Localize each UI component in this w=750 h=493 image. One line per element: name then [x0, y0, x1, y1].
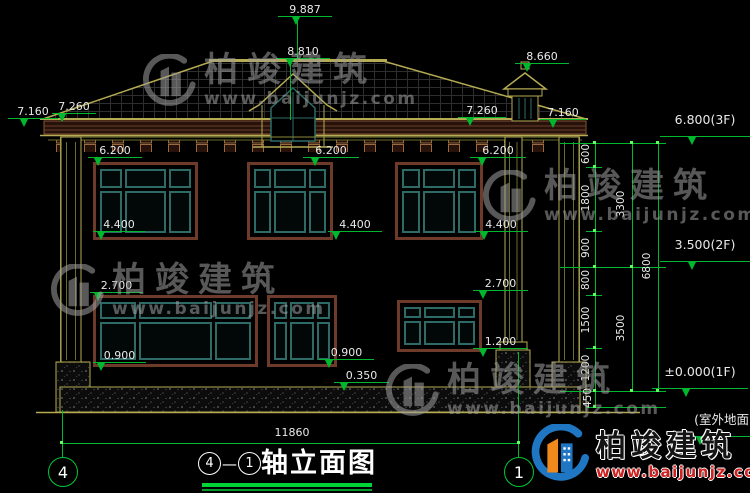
window-pane [254, 169, 271, 188]
chain-tick [630, 141, 633, 144]
chain-total: 6800 [641, 244, 653, 288]
window-pane [424, 321, 455, 345]
window-pane [404, 321, 421, 345]
dim-1f-window-top: 2.700 [473, 277, 528, 291]
brand-logo-url: www.baijunjz.com [596, 463, 750, 481]
watermark-url: www.baijunjz.com [204, 89, 418, 109]
window-pane [274, 169, 305, 188]
dim-tick [60, 441, 63, 444]
title-text: 轴立面图 [261, 450, 377, 477]
window-pane [139, 322, 212, 360]
window-pane [169, 169, 191, 188]
watermark-brand: 柏竣建筑 [447, 362, 661, 399]
chain-tick [593, 141, 596, 144]
dim-eave-right-inner: 7.260 [458, 104, 506, 118]
chain-ext-line [560, 143, 666, 144]
dim-2f-window-top: 6.200 [303, 144, 359, 158]
drawing-title: 4 — 1 轴立面图 [198, 450, 377, 477]
watermark-brand: 柏竣建筑 [544, 168, 750, 205]
elevation-sheet: 9.887 8.810 8.660 7.160 7.260 7.260 7.16… [0, 0, 750, 493]
dim-ridge-level: 9.887 [278, 3, 332, 17]
watermark-logo-icon [385, 364, 439, 418]
window-pane [254, 191, 271, 233]
title-axis-start: 4 [198, 452, 221, 475]
chain-tick [593, 346, 596, 349]
watermark-logo-icon [142, 54, 196, 108]
level-label-3f: 6.800(3F) [660, 112, 750, 137]
window-pane [458, 169, 476, 188]
window-pane [423, 191, 456, 233]
watermark: 柏竣建筑 www.baijunjz.com [50, 262, 326, 319]
window-pane [125, 169, 166, 188]
dim-eave-left-outer: 7.160 [8, 105, 58, 119]
watermark: 柏竣建筑 www.baijunjz.com [482, 168, 750, 225]
window-pane [100, 169, 122, 188]
window-pane [274, 322, 287, 360]
window-pane [309, 191, 326, 233]
chain-tick [593, 229, 596, 232]
title-underline-thin [202, 489, 372, 491]
title-separator: — [222, 455, 237, 473]
watermark-brand: 柏竣建筑 [204, 52, 418, 89]
dim-chimney-level: 8.660 [515, 50, 569, 64]
window-pane [309, 169, 326, 188]
dim-eave-right-outer: 7.160 [540, 106, 586, 120]
watermark-logo-icon [482, 170, 536, 224]
window-1f-right [397, 300, 482, 352]
window-pane [290, 322, 313, 360]
dim-total-width: 11860 [262, 426, 322, 439]
title-axis-end: 1 [238, 452, 261, 475]
brand-logo: 柏竣建筑 www.baijunjz.com [528, 424, 750, 486]
window-pane [404, 307, 421, 318]
dim-2f-window-sill: 4.400 [328, 218, 382, 232]
chain-tick [656, 141, 659, 144]
watermark-url: www.baijunjz.com [112, 299, 326, 319]
chain-value: 1500 [580, 298, 592, 342]
level-label-2f: 3.500(2F) [660, 237, 750, 262]
chain-tick [630, 265, 633, 268]
window-pane [274, 191, 305, 233]
dim-2f-window-top: 6.200 [470, 144, 526, 158]
axis-extension-line [62, 410, 63, 457]
window-pane [402, 169, 420, 188]
watermark-logo-icon [50, 264, 104, 318]
window-pane [423, 169, 456, 188]
dim-eave-left-inner: 7.260 [52, 100, 96, 114]
chain-tick [593, 265, 596, 268]
dim-1f-window-sill: 0.900 [93, 349, 146, 363]
window-pane [215, 322, 251, 360]
brand-logo-icon [528, 424, 590, 486]
dim-1f-right-sill: 1.200 [473, 335, 528, 349]
chain-subtotal: 3500 [615, 306, 627, 350]
watermark-url: www.baijunjz.com [544, 205, 750, 225]
dim-2f-window-sill: 4.400 [93, 218, 145, 232]
watermark: 柏竣建筑 www.baijunjz.com [385, 362, 661, 419]
dim-tick [517, 441, 520, 444]
brand-logo-text: 柏竣建筑 [596, 430, 750, 463]
chain-value: 800 [580, 258, 592, 302]
window-pane [169, 191, 191, 233]
window-2f-right [395, 162, 483, 240]
axis-bubble-4: 4 [48, 457, 78, 487]
watermark-brand: 柏竣建筑 [112, 262, 326, 299]
dim-1f-window-sill: 0.900 [319, 346, 374, 360]
watermark-url: www.baijunjz.com [447, 399, 661, 419]
window-pane [458, 307, 475, 318]
dim-porch-step-level: 0.350 [334, 369, 389, 383]
dim-2f-window-top: 6.200 [88, 144, 142, 158]
window-pane [402, 191, 420, 233]
chain-tick [593, 293, 596, 296]
watermark: 柏竣建筑 www.baijunjz.com [142, 52, 418, 109]
title-underline [202, 483, 372, 487]
width-dim-line [62, 443, 519, 444]
window-pane [424, 307, 455, 318]
window-2f-middle [247, 162, 333, 240]
level-label-1f: ±0.000(1F) [652, 364, 748, 389]
